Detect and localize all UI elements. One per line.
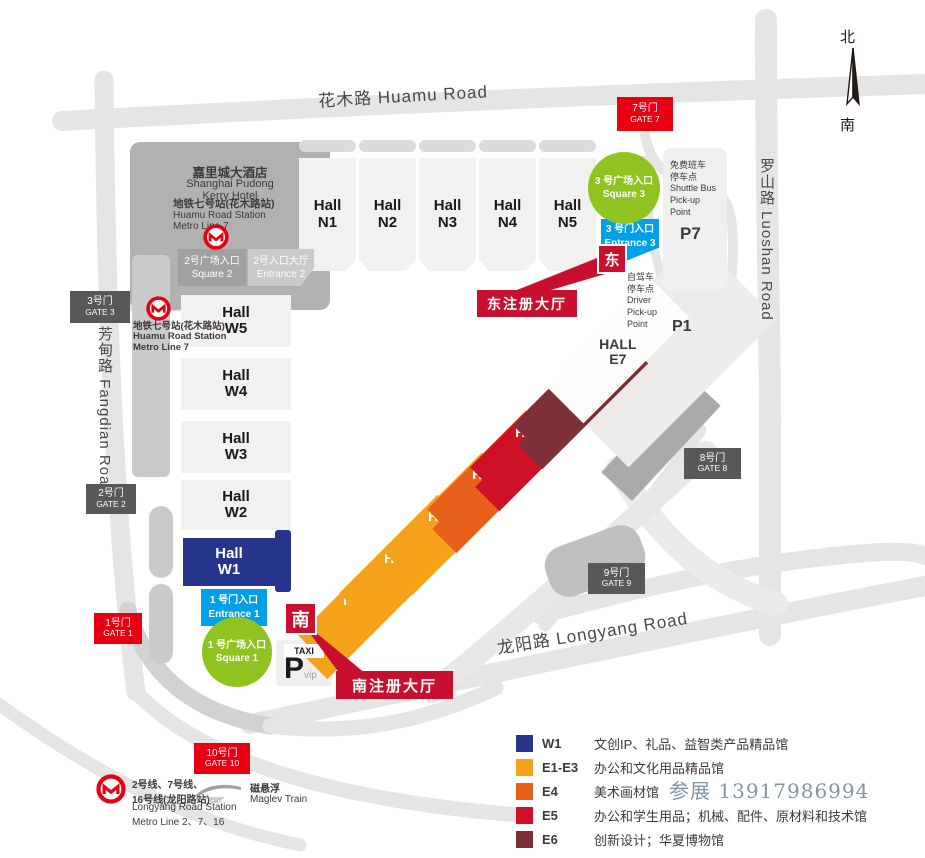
legend-row-e1e3: E1-E3 办公和文化用品精品馆: [516, 759, 916, 776]
gate-3: 3号门GATE 3: [70, 291, 130, 323]
legend-swatch-e4: [516, 783, 533, 800]
gate-2: 2号门GATE 2: [86, 484, 136, 514]
registration-leaders: [0, 0, 925, 858]
legend-row-e4: E4 美术画材馆 参展 13917986994: [516, 783, 916, 800]
legend-swatch-e5: [516, 807, 533, 824]
legend-watermark: 参展 13917986994: [669, 783, 869, 800]
east-registration-hall-banner: 东注册大厅: [477, 290, 577, 317]
legend: W1 文创IP、礼品、益智类产品精品馆 E1-E3 办公和文化用品精品馆 E4 …: [516, 735, 916, 855]
gate-7: 7号门GATE 7: [617, 97, 673, 131]
legend-row-e5: E5 办公和学生用品；机械、配件、原材料和技术馆: [516, 807, 916, 824]
legend-swatch-e6: [516, 831, 533, 848]
gate-10: 10号门GATE 10: [194, 743, 250, 774]
gate-8: 8号门GATE 8: [684, 448, 741, 479]
gate-1: 1号门GATE 1: [94, 613, 142, 644]
expo-center-map: Hall N1 Hall N2 Hall N3 Hall N4 Hall N5 …: [0, 0, 925, 858]
legend-row-w1: W1 文创IP、礼品、益智类产品精品馆: [516, 735, 916, 752]
south-hall-label: 南注册大厅: [352, 675, 437, 696]
legend-row-e6: E6 创新设计；华夏博物馆: [516, 831, 916, 848]
east-hall-label: 东注册大厅: [487, 294, 567, 314]
south-marker-label: 南: [292, 606, 310, 632]
gate-9: 9号门GATE 9: [588, 563, 645, 594]
east-marker: 东: [599, 246, 625, 272]
south-marker: 南: [286, 604, 315, 633]
legend-swatch-w1: [516, 735, 533, 752]
east-leader-wedge: [512, 258, 612, 292]
south-registration-hall-banner: 南注册大厅: [336, 671, 453, 699]
east-marker-label: 东: [604, 249, 619, 270]
legend-swatch-e1e3: [516, 759, 533, 776]
